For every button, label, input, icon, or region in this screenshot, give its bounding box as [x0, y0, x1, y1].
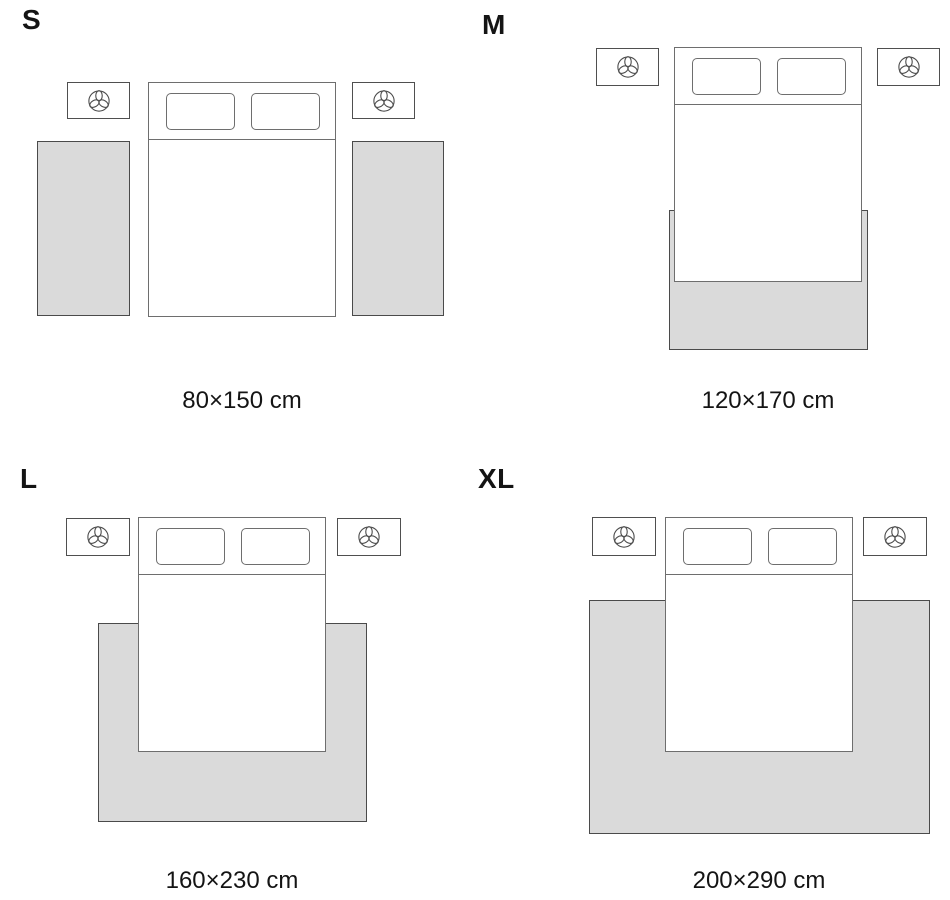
plant-icon [880, 522, 910, 552]
nightstand-right [863, 517, 927, 556]
rug-dimensions-xl: 200×290 cm [559, 868, 950, 894]
rug-size-guide: S [0, 0, 950, 900]
plant-icon [609, 522, 639, 552]
pillow-right [768, 528, 837, 565]
nightstand-left [592, 517, 656, 556]
size-label-xl: XL [478, 464, 515, 494]
size-option-xl: XL [0, 0, 950, 900]
pillow-left [683, 528, 752, 565]
bed [665, 517, 853, 752]
